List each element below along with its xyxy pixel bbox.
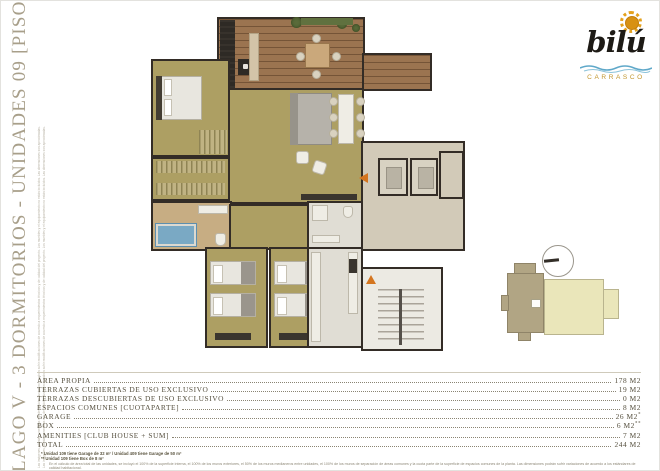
bathtub — [156, 224, 196, 246]
planter-strip — [301, 18, 353, 25]
key-plan-building — [544, 279, 604, 335]
page-title-vertical: LAGO V - 3 DORMITORIOS - UNIDADES 09 [PI… — [9, 1, 31, 471]
outdoor-chair — [296, 52, 305, 61]
bathroom-vanity — [312, 235, 340, 243]
areas-table: ÁREA PROPIA178 M2 TERRAZAS CUBIERTAS DE … — [37, 372, 641, 449]
outdoor-chair — [312, 70, 321, 79]
stove-icon — [349, 259, 357, 273]
dotted-leader — [227, 400, 620, 401]
outdoor-chair — [312, 34, 321, 43]
table-row: BOX6 M2** — [37, 421, 641, 430]
key-plan-core — [531, 299, 541, 308]
pillow — [277, 265, 287, 283]
dining-chair — [356, 129, 365, 138]
brochure-page: LAGO V - 3 DORMITORIOS - UNIDADES 09 [PI… — [0, 0, 660, 471]
entry-arrow-icon — [359, 173, 368, 183]
shower — [312, 205, 328, 221]
toilet-icon — [343, 206, 353, 218]
dresser — [215, 333, 251, 340]
footnote-box: ** Unidad 109 tiene Box de 8 m² — [41, 456, 637, 461]
elevator-cab — [418, 167, 434, 189]
brand-name: bilú — [576, 25, 656, 59]
row-label: AMENITIES [CLUB HOUSE + SUM] — [37, 431, 169, 440]
key-plan-highlight-notch — [501, 295, 509, 311]
kitchen-counter — [311, 252, 321, 342]
pillow — [164, 79, 172, 96]
table-row: GARAGE26 M2* — [37, 412, 641, 421]
outdoor-chair — [332, 52, 341, 61]
key-plan-highlight-bottom — [518, 332, 531, 341]
outdoor-table — [305, 43, 330, 68]
plant-icon — [352, 24, 360, 32]
blanket — [241, 294, 255, 316]
footnotes: * Unidad 109 tiene Garage de 32 m² / Uni… — [41, 451, 637, 471]
brand-logo: bilú CARRASCO — [576, 9, 656, 87]
barbecue-plate — [243, 64, 248, 69]
double-bed — [156, 76, 202, 120]
dotted-leader — [172, 437, 620, 438]
closet-shelving — [156, 183, 225, 195]
sofa-back — [290, 93, 298, 145]
row-value: 7 M2 — [623, 431, 641, 440]
room-terrace-extension — [362, 53, 432, 91]
compass-needle — [544, 258, 559, 263]
wardrobe — [199, 130, 227, 154]
row-value: 0 M2 — [623, 394, 641, 403]
single-bed — [210, 293, 256, 317]
bathroom-vanity — [198, 205, 228, 214]
dining-chair — [329, 113, 338, 122]
elevator-cab — [386, 167, 402, 189]
brand-location: CARRASCO — [576, 74, 656, 81]
wave-icon — [580, 64, 652, 74]
stair-rail — [399, 289, 402, 345]
dining-chair — [356, 97, 365, 106]
table-row: ESPACIOS COMUNES [CUOTAPARTE]8 M2 — [37, 403, 641, 412]
row-value: 8 M2 — [623, 403, 641, 412]
dining-chair — [356, 113, 365, 122]
table-row: TOTAL244 M2 — [37, 440, 641, 449]
row-label: ÁREA PROPIA — [37, 376, 91, 385]
dotted-leader — [94, 382, 612, 383]
closet-shelving — [156, 161, 225, 173]
row-label: ESPACIOS COMUNES [CUOTAPARTE] — [37, 403, 179, 412]
service-room — [439, 151, 464, 199]
armchair — [296, 151, 309, 164]
row-value: 178 M2 — [614, 376, 641, 385]
row-label: GARAGE — [37, 412, 71, 421]
dining-table — [338, 94, 354, 144]
pillow — [213, 297, 223, 315]
blanket — [241, 262, 255, 284]
single-bed — [210, 261, 256, 285]
row-label: TOTAL — [37, 440, 63, 449]
row-value: 26 M2* — [616, 412, 641, 421]
pillow — [277, 297, 287, 315]
elevator-2 — [410, 158, 438, 196]
north-arrow-icon — [542, 245, 574, 277]
row-label: TERRAZAS DESCUBIERTAS DE USO EXCLUSIVO — [37, 394, 224, 403]
key-plan-building-step — [603, 289, 619, 319]
row-value: 6 M2** — [617, 421, 641, 430]
dining-chair — [329, 97, 338, 106]
dotted-leader — [57, 427, 614, 428]
row-label: BOX — [37, 421, 54, 430]
dotted-leader — [211, 391, 615, 392]
pillow — [213, 265, 223, 283]
bed-headboard — [156, 76, 162, 120]
table-row: ÁREA PROPIA178 M2 — [37, 376, 641, 385]
dotted-leader — [66, 446, 611, 447]
dining-chair — [329, 129, 338, 138]
row-value: 19 M2 — [619, 385, 641, 394]
terrace-bench — [249, 33, 259, 81]
stair-arrow-icon — [366, 275, 376, 284]
table-row: TERRAZAS DESCUBIERTAS DE USO EXCLUSIVO0 … — [37, 394, 641, 403]
row-label: TERRAZAS CUBIERTAS DE USO EXCLUSIVO — [37, 385, 208, 394]
room-hall — [229, 204, 309, 250]
footnote-disclaimer: En el cálculo de área total de las unida… — [41, 462, 637, 471]
row-value: 244 M2 — [614, 440, 641, 449]
table-row: AMENITIES [CLUB HOUSE + SUM]7 M2 — [37, 431, 641, 440]
pillow — [164, 99, 172, 116]
table-row: TERRAZAS CUBIERTAS DE USO EXCLUSIVO19 M2 — [37, 385, 641, 394]
toilet-icon — [215, 233, 226, 246]
elevator-1 — [378, 158, 408, 196]
dotted-leader — [182, 409, 620, 410]
tv-credenza — [301, 194, 357, 200]
dotted-leader — [74, 418, 613, 419]
